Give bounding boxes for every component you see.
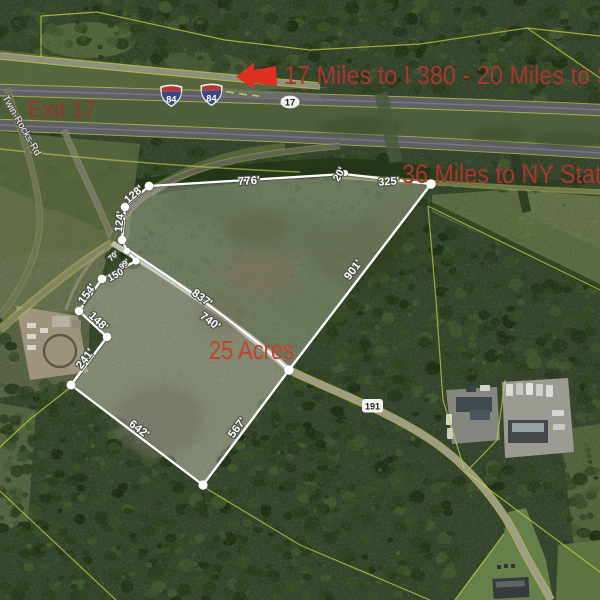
svg-text:36 Miles to NY State L: 36 Miles to NY State L (402, 159, 600, 189)
svg-text:84: 84 (206, 93, 217, 103)
svg-text:84: 84 (166, 94, 177, 104)
svg-text:191: 191 (365, 402, 380, 412)
svg-text:25 Acres: 25 Acres (209, 337, 294, 365)
svg-text:17 Miles to I 380 - 20 Miles t: 17 Miles to I 380 - 20 Miles to Sc (284, 60, 600, 90)
svg-text:17: 17 (285, 98, 296, 109)
svg-text:124': 124' (113, 210, 127, 232)
svg-text:325': 325' (378, 175, 400, 188)
svg-text:Exit 17: Exit 17 (28, 96, 96, 122)
svg-text:776': 776' (238, 175, 261, 188)
